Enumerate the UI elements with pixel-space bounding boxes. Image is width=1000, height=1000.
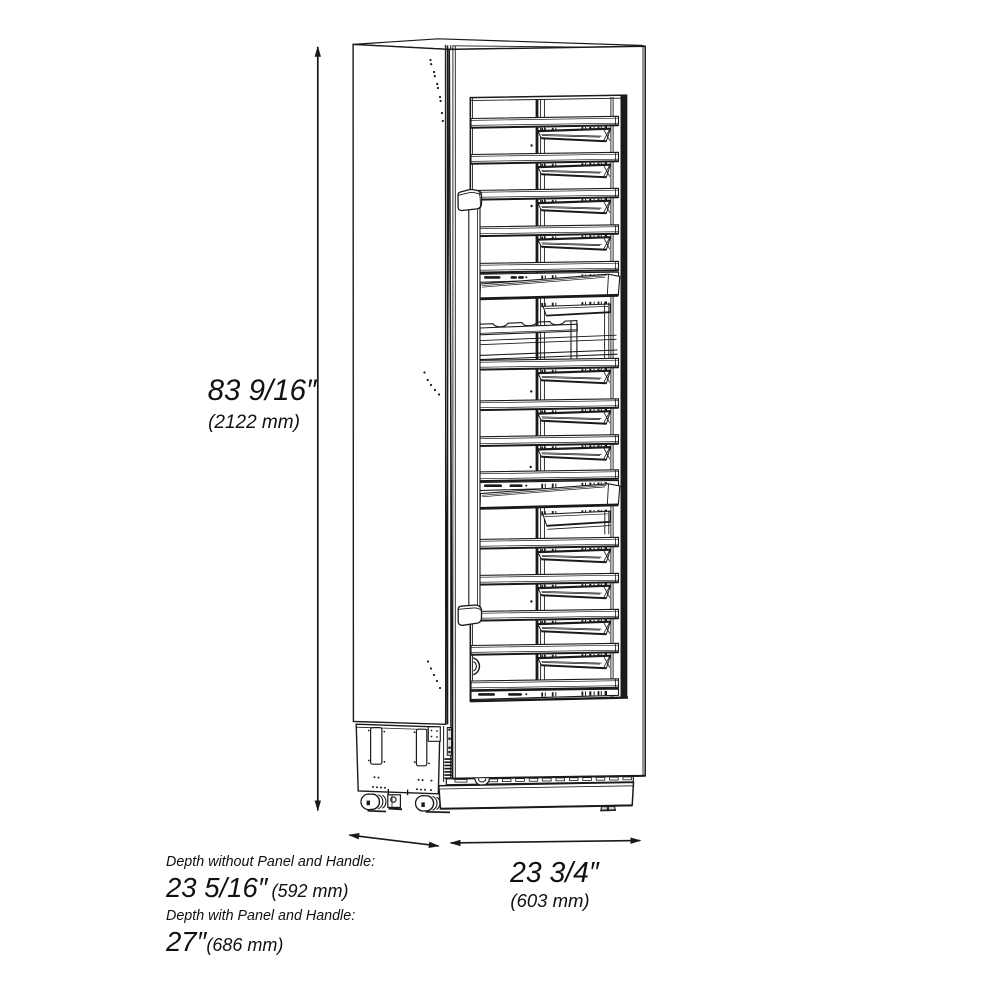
svg-text:83 9/16″: 83 9/16″: [208, 374, 318, 407]
svg-text:(2122 mm): (2122 mm): [208, 412, 300, 433]
svg-text:23 3/4″: 23 3/4″: [509, 856, 600, 888]
svg-text:Depth without Panel and Handle: Depth without Panel and Handle:: [166, 854, 375, 870]
svg-text:(603 mm): (603 mm): [510, 890, 589, 911]
svg-text:Depth with Panel and Handle:: Depth with Panel and Handle:: [166, 908, 355, 924]
